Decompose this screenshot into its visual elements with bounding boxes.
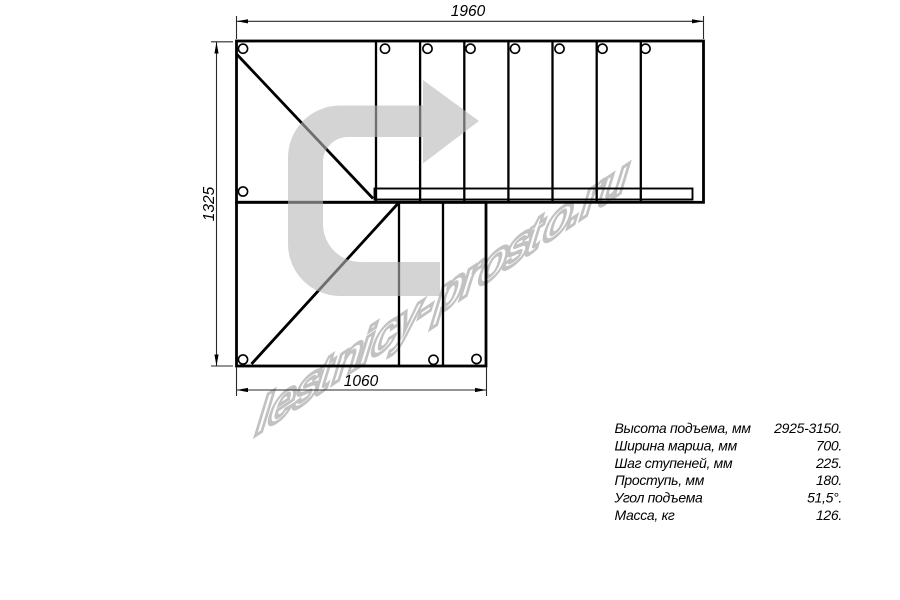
svg-text:Угол подъема: Угол подъема bbox=[614, 490, 704, 506]
svg-text:1960: 1960 bbox=[451, 3, 486, 20]
svg-text:225.: 225. bbox=[815, 455, 842, 471]
svg-text:1060: 1060 bbox=[344, 373, 379, 390]
svg-text:180.: 180. bbox=[816, 472, 842, 488]
svg-text:51,5°.: 51,5°. bbox=[807, 490, 842, 506]
svg-text:Ширина марша, мм: Ширина марша, мм bbox=[615, 437, 738, 453]
svg-text:700.: 700. bbox=[816, 437, 842, 453]
svg-text:Проступь, мм: Проступь, мм bbox=[615, 472, 705, 488]
svg-text:Масса, кг: Масса, кг bbox=[615, 507, 675, 523]
svg-text:Высота подъема, мм: Высота подъема, мм bbox=[615, 420, 752, 436]
svg-text:1325: 1325 bbox=[201, 186, 218, 221]
svg-text:2925-3150.: 2925-3150. bbox=[773, 420, 842, 436]
svg-text:126.: 126. bbox=[816, 507, 842, 523]
svg-text:Шаг ступеней, мм: Шаг ступеней, мм bbox=[615, 455, 733, 471]
